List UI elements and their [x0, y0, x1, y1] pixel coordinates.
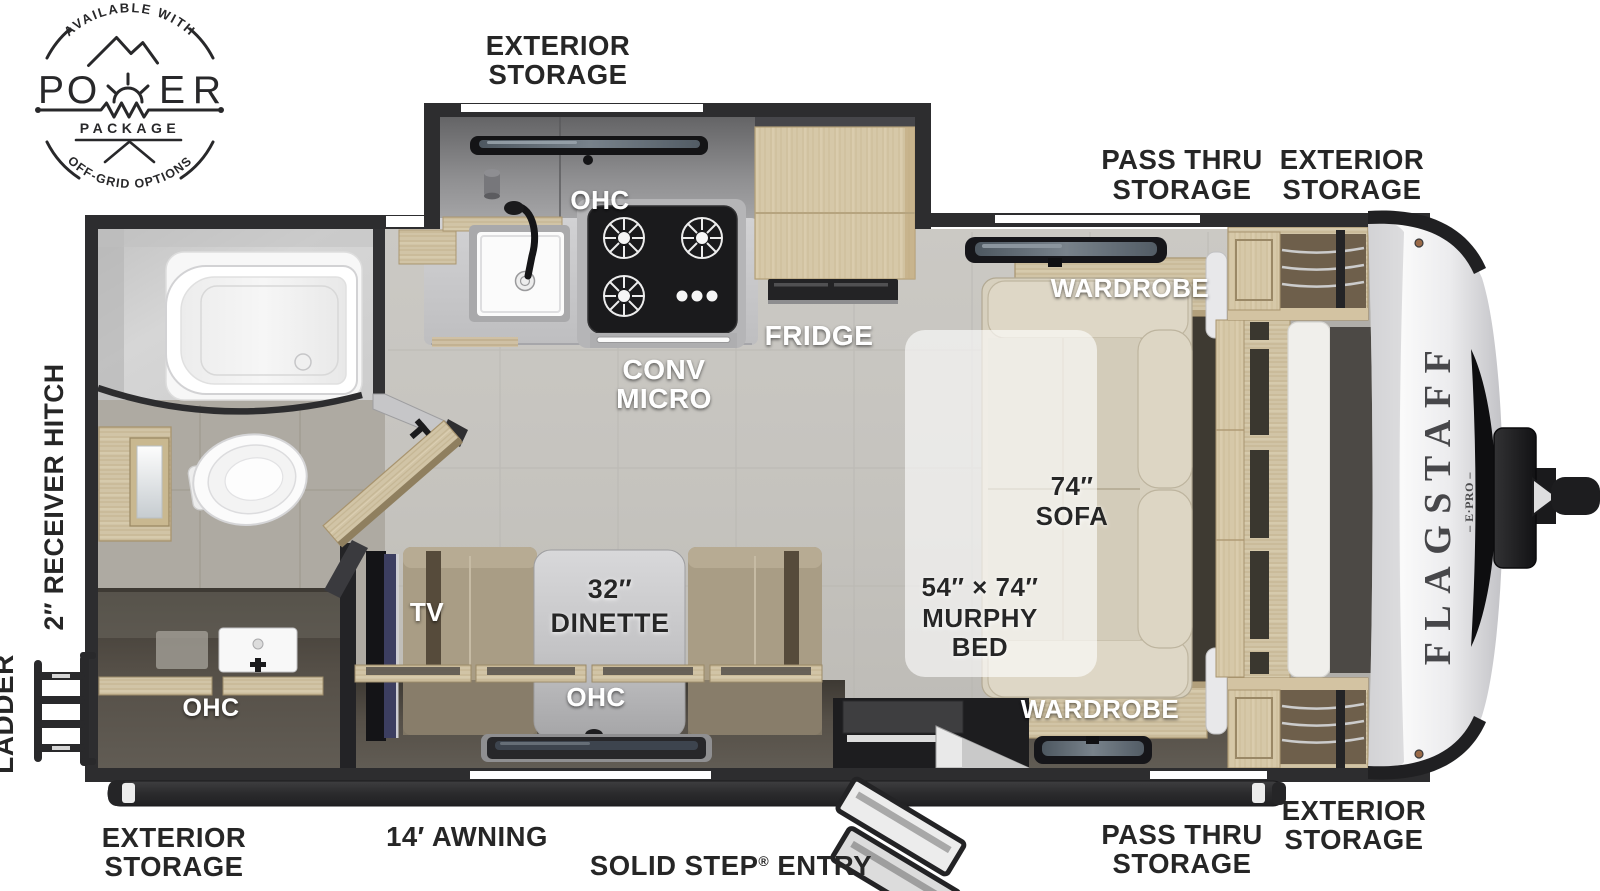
- svg-text:R: R: [193, 69, 221, 112]
- svg-text:O: O: [67, 69, 97, 112]
- svg-text:PASS THRU: PASS THRU: [1101, 819, 1262, 850]
- svg-text:P: P: [38, 69, 64, 112]
- svg-text:STORAGE: STORAGE: [105, 851, 244, 882]
- svg-text:FLAGSTAFF: FLAGSTAFF: [1417, 339, 1459, 666]
- svg-text:STORAGE: STORAGE: [1113, 848, 1252, 879]
- svg-text:74″: 74″: [1051, 471, 1094, 501]
- svg-text:2″ RECEIVER HITCH: 2″ RECEIVER HITCH: [39, 363, 69, 630]
- svg-text:EXTERIOR: EXTERIOR: [486, 30, 631, 61]
- svg-text:TV: TV: [410, 597, 444, 627]
- svg-text:EXTERIOR: EXTERIOR: [1282, 795, 1427, 826]
- svg-text:FRIDGE: FRIDGE: [765, 320, 874, 351]
- svg-text:OHC: OHC: [570, 185, 629, 215]
- svg-text:14′ AWNING: 14′ AWNING: [386, 821, 548, 852]
- svg-text:E: E: [159, 69, 185, 112]
- svg-text:WARDROBE: WARDROBE: [1051, 273, 1210, 303]
- svg-text:PASS THRU: PASS THRU: [1101, 144, 1262, 175]
- svg-text:CONV: CONV: [623, 354, 706, 385]
- svg-text:EXTERIOR: EXTERIOR: [102, 822, 247, 853]
- svg-text:– E·PRO –: – E·PRO –: [1462, 472, 1476, 533]
- svg-text:MICRO: MICRO: [616, 383, 712, 414]
- svg-text:MURPHY: MURPHY: [922, 603, 1038, 633]
- svg-text:WARDROBE: WARDROBE: [1021, 694, 1180, 724]
- svg-text:SOLID STEP® ENTRY: SOLID STEP® ENTRY: [590, 850, 872, 881]
- svg-text:OHC: OHC: [566, 682, 625, 712]
- svg-text:DINETTE: DINETTE: [550, 608, 669, 638]
- svg-text:BED: BED: [952, 632, 1008, 662]
- svg-text:54″ × 74″: 54″ × 74″: [922, 572, 1039, 602]
- svg-text:STORAGE: STORAGE: [1113, 174, 1252, 205]
- svg-text:STORAGE: STORAGE: [489, 59, 628, 90]
- svg-text:PACKAGE: PACKAGE: [80, 120, 180, 136]
- svg-text:STORAGE: STORAGE: [1285, 824, 1424, 855]
- svg-text:LADDER: LADDER: [0, 654, 19, 774]
- svg-text:SOFA: SOFA: [1036, 501, 1109, 531]
- svg-text:32″: 32″: [588, 574, 632, 604]
- svg-text:STORAGE: STORAGE: [1283, 174, 1422, 205]
- svg-text:EXTERIOR: EXTERIOR: [1280, 144, 1425, 175]
- svg-text:OHC: OHC: [182, 694, 239, 722]
